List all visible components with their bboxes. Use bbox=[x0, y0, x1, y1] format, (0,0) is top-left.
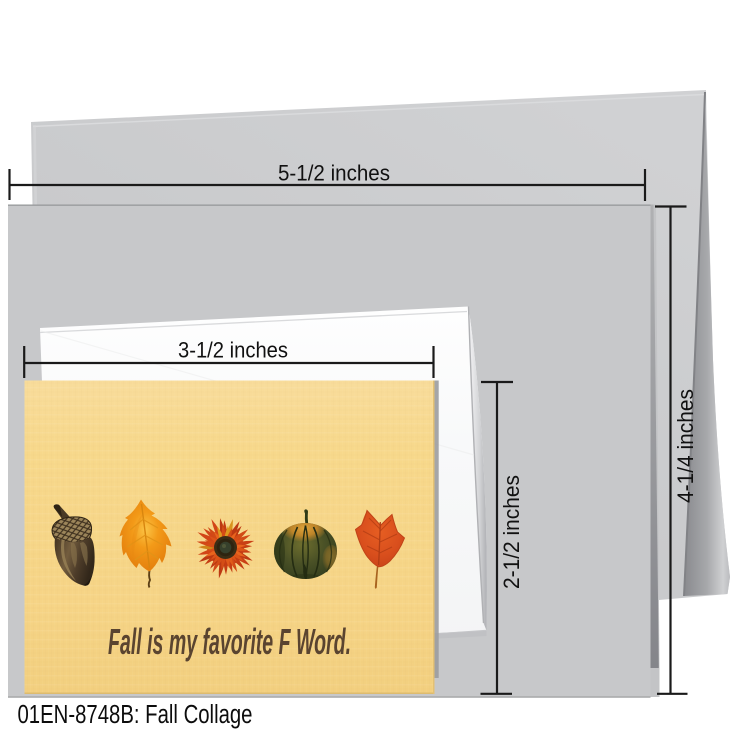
svg-text:3-1/2 inches: 3-1/2 inches bbox=[178, 338, 288, 363]
svg-text:4-1/4 inches: 4-1/4 inches bbox=[673, 389, 698, 503]
svg-text:01EN-8748B: Fall Collage: 01EN-8748B: Fall Collage bbox=[18, 701, 253, 729]
svg-text:Fall is my favorite F Word.: Fall is my favorite F Word. bbox=[108, 621, 351, 662]
svg-text:5-1/2 inches: 5-1/2 inches bbox=[278, 161, 390, 186]
svg-text:2-1/2 inches: 2-1/2 inches bbox=[499, 475, 524, 589]
